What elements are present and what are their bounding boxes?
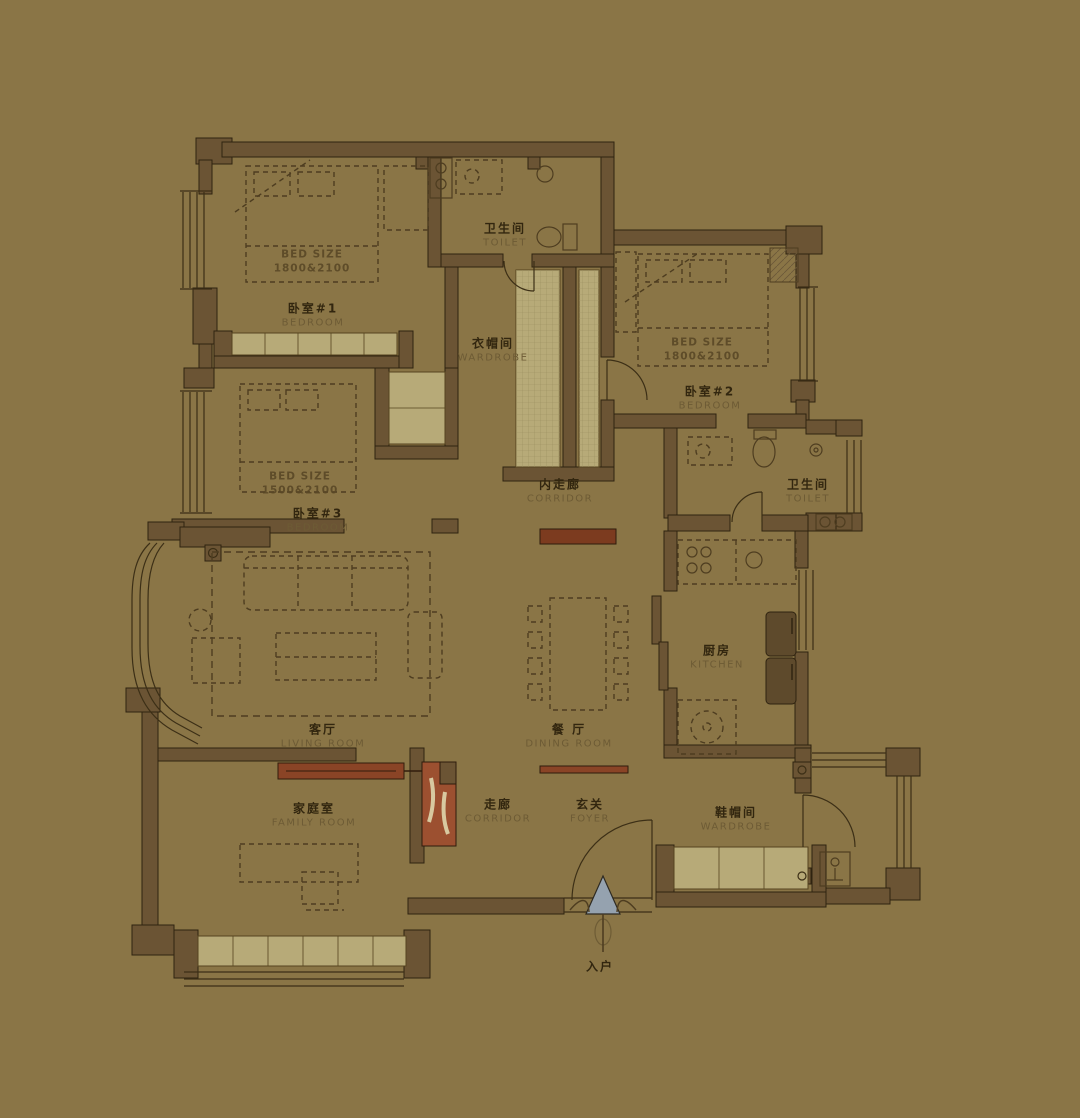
family-sideboard	[278, 763, 424, 779]
bed-bedroom2	[616, 252, 768, 366]
nightstand-bedroom2	[770, 248, 798, 282]
bed-bedroom1	[235, 160, 428, 282]
floor-plan-svg	[0, 0, 1080, 1118]
fridge-icon	[766, 612, 796, 704]
entry-door-arc	[572, 820, 652, 900]
foyer-rug	[540, 766, 628, 773]
bed-bedroom3	[240, 384, 356, 492]
balcony-door-arc	[803, 795, 855, 847]
kitchen-counter	[678, 540, 796, 584]
entrance-arrow	[570, 876, 636, 952]
built-in-cabinets	[198, 270, 808, 966]
art-piece	[422, 762, 456, 846]
living-room-furniture	[189, 552, 442, 716]
toilet1-vanity	[456, 160, 502, 194]
family-room-furniture	[240, 844, 358, 910]
toilet2-vanity	[688, 437, 732, 465]
red-accents	[278, 529, 628, 846]
floor-plan: BED SIZE1800&2100 卧室#1BEDROOM 卫生间TOILET …	[0, 0, 1080, 1118]
stove-icon	[687, 547, 762, 573]
corridor-rug	[540, 529, 616, 544]
toilet1-fixtures	[430, 158, 577, 250]
toilet2-door-arc	[732, 492, 762, 522]
dining-table	[528, 598, 628, 710]
